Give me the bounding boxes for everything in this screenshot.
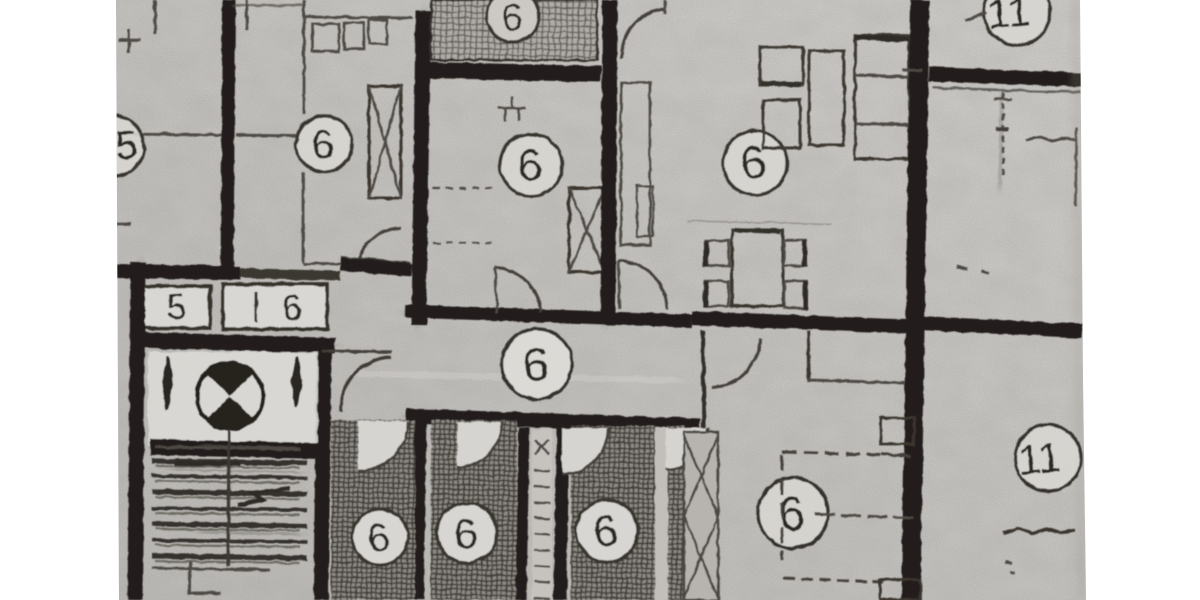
svg-text:6: 6 — [591, 506, 620, 557]
svg-text:5: 5 — [114, 123, 138, 168]
svg-text:11: 11 — [1016, 433, 1063, 483]
svg-text:6: 6 — [500, 0, 524, 40]
svg-text:11: 11 — [985, 0, 1032, 38]
svg-text:6: 6 — [310, 122, 336, 168]
svg-text:5: 5 — [165, 286, 187, 328]
svg-text:6: 6 — [281, 286, 304, 328]
svg-text:6: 6 — [516, 140, 544, 191]
svg-text:6: 6 — [521, 338, 551, 393]
svg-text:6: 6 — [452, 509, 479, 558]
